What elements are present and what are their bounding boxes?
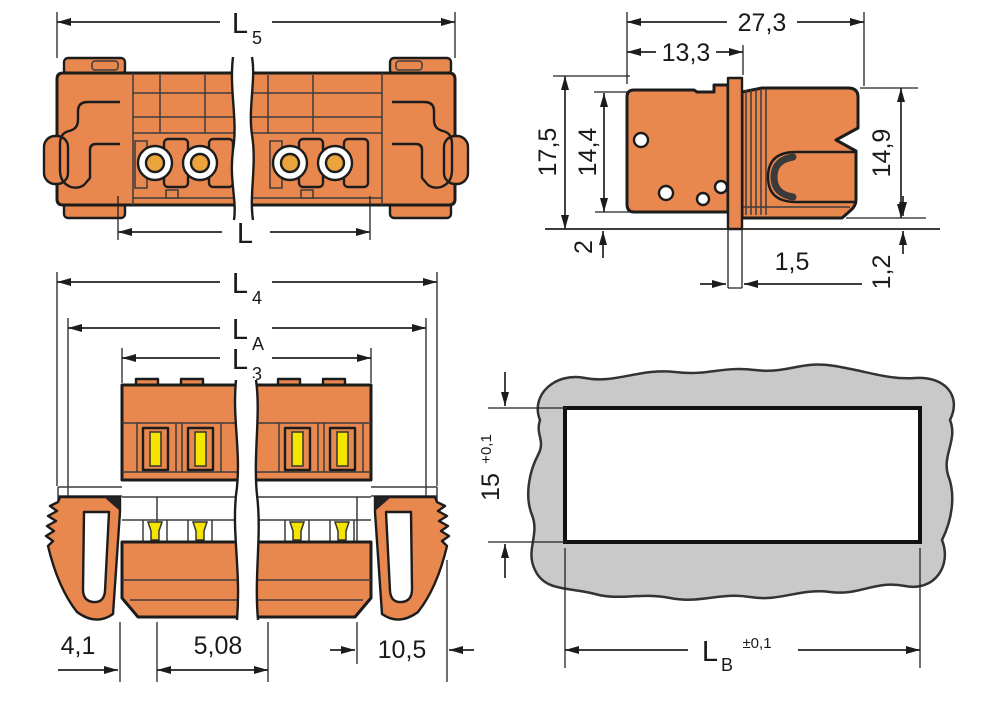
dimension-panel-gap: 1,2 (868, 196, 903, 289)
dim-label-l5: L (232, 8, 248, 40)
technical-drawing-page: L 5 (0, 0, 1000, 711)
dimension-l5: L 5 (57, 8, 455, 58)
dim-label-l4-sub: 4 (252, 288, 262, 308)
plug-housing-top (44, 55, 468, 222)
latch-bulge (44, 136, 68, 184)
cutout-rectangle (565, 408, 920, 542)
side-left-block (627, 85, 728, 212)
dimension-front-width: 13,3 (627, 39, 743, 75)
dim-label-cutout-height-tol: +0,1 (478, 434, 495, 464)
plug-housing-front (46, 378, 449, 622)
dim-label-flange-thickness: 1,5 (775, 248, 810, 276)
front-view: L 4 L A L 3 (46, 268, 474, 682)
side-view: 27,3 13,3 17,5 14,4 14,9 2 (534, 9, 940, 289)
dim-label-edge-offset: 4,1 (61, 632, 96, 660)
break-line (232, 55, 254, 222)
break-line (235, 378, 259, 622)
panel-cutout-view: 15 +0,1 L B ±0,1 (477, 364, 954, 675)
connector-dimension-drawing: L 5 (0, 0, 1000, 711)
dim-label-panel-gap: 1,2 (868, 255, 896, 290)
dim-label-overall-height: 17,5 (534, 128, 562, 177)
dim-label-cutout-width-sub: B (721, 655, 733, 675)
dim-label-l5-sub: 5 (252, 28, 262, 48)
dimension-edge-offset: 4,1 (58, 622, 120, 682)
dimension-flange-thickness: 1,5 (700, 248, 862, 284)
dim-label-overall-width: 27,3 (738, 9, 787, 37)
dim-label-cutout-width-tol: ±0,1 (742, 635, 771, 652)
dim-label-front-width: 13,3 (662, 39, 711, 67)
dim-label-la: L (232, 314, 248, 346)
dim-label-la-sub: A (252, 334, 264, 354)
dim-label-l3: L (232, 344, 248, 376)
dim-label-pin-length: 2 (570, 240, 598, 254)
top-view: L 5 (44, 8, 468, 250)
dim-label-l4: L (232, 268, 248, 300)
dimension-overall-height: 17,5 (534, 76, 565, 229)
dimension-right-height: 14,9 (868, 88, 901, 218)
dim-label-cutout-width: L (702, 636, 718, 668)
dim-label-lever-width: 10,5 (378, 636, 427, 664)
flange-below-panel (728, 229, 742, 288)
locking-lever (46, 497, 120, 620)
dimension-body-height: 14,4 (574, 93, 604, 212)
dimension-pin-length: 2 (570, 231, 603, 258)
dimension-pitch: 5,08 (157, 622, 268, 682)
dim-label-pitch: 5,08 (194, 632, 243, 660)
dim-label-right-height: 14,9 (868, 129, 896, 178)
dim-label-cutout-height: 15 (477, 473, 505, 501)
dim-label-body-height: 14,4 (574, 128, 602, 177)
dim-label-l: L (237, 218, 253, 250)
panel-flange (728, 78, 742, 229)
